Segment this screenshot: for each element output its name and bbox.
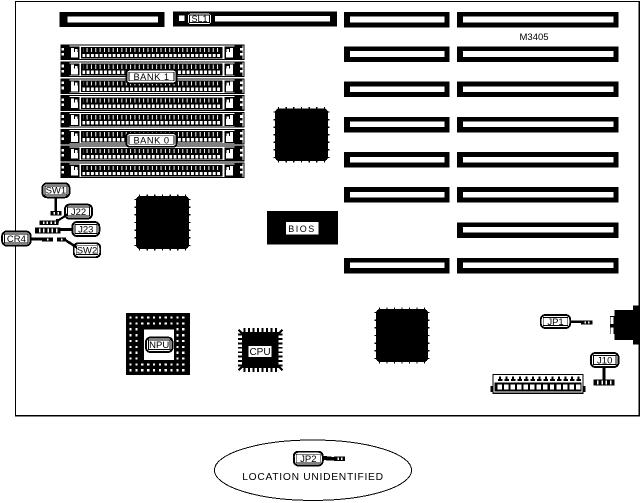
svg-text:JP2: JP2 [300,454,316,465]
svg-text:LOCATION UNIDENTIFIED: LOCATION UNIDENTIFIED [242,472,384,483]
svg-text:BIOS: BIOS [288,224,316,234]
svg-text:SL1: SL1 [191,14,207,24]
svg-text:J22: J22 [71,207,86,218]
svg-text:SW2: SW2 [77,246,98,257]
svg-text:CPU: CPU [249,347,270,358]
svg-text:J23: J23 [78,224,93,235]
svg-text:JP1: JP1 [547,317,563,328]
svg-text:CR4: CR4 [7,234,26,245]
svg-text:BANK 1: BANK 1 [133,72,169,82]
svg-text:M3405: M3405 [520,32,549,43]
svg-text:SW1: SW1 [46,186,67,197]
svg-text:BANK 0: BANK 0 [133,135,169,145]
svg-text:NPU: NPU [149,340,169,351]
svg-text:J10: J10 [597,355,612,366]
